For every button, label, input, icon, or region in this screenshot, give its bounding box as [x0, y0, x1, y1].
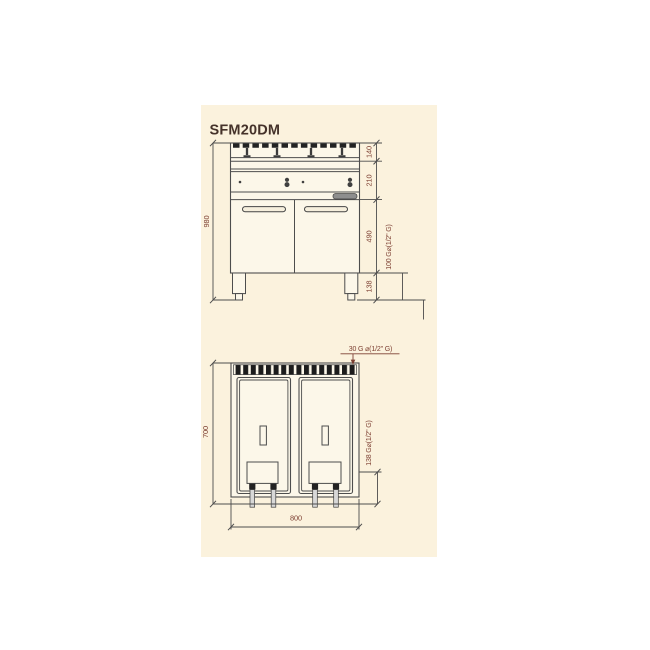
pipe-valve	[312, 484, 318, 490]
dim-depth-label: 700	[201, 426, 210, 438]
model-title: SFM20DM	[210, 123, 281, 139]
dim-overall-height-label: 980	[202, 215, 211, 227]
foot-left-upper	[233, 273, 246, 294]
burner-box	[309, 462, 341, 483]
tank-slot	[322, 426, 328, 445]
door-handle-right	[305, 207, 348, 212]
dim-gas-rear: 138 G⌀(1/2" G)	[359, 420, 382, 507]
burner-box	[247, 462, 278, 483]
dim-extension-lines	[357, 143, 426, 300]
knob-icon	[285, 178, 289, 182]
top-view: 700 800 138 G⌀(1/2" G) 30 G ⌀(1/2" G)	[201, 346, 400, 530]
pipe-valve	[249, 484, 255, 490]
dim-140-label: 140	[365, 146, 374, 158]
pipe-valve	[270, 484, 276, 490]
spec-sheet-page: SFM20DM	[0, 0, 650, 650]
dim-right-sections: 140 210 490 138	[357, 140, 426, 303]
pipe-stem	[313, 490, 318, 508]
foot-right-upper	[345, 273, 358, 294]
pipe-stem	[250, 490, 255, 508]
pilot-dot-icon	[302, 181, 305, 184]
gas-lines	[403, 273, 424, 320]
front-view: 980 140 210 490 138 100 G⌀(1/2" G)	[202, 140, 426, 320]
pipe-valve	[333, 484, 339, 490]
dim-210-label: 210	[365, 174, 374, 186]
dim-width-label: 800	[290, 514, 302, 523]
tank-slot	[260, 426, 266, 445]
technical-drawing: SFM20DM	[0, 0, 650, 650]
gas-connection-front: 100 G⌀(1/2" G)	[386, 224, 424, 319]
knob-icon	[285, 182, 290, 187]
door-handle-left	[243, 207, 286, 212]
rear-hatch-strip	[234, 365, 357, 375]
knob-icon	[348, 182, 353, 187]
feet	[233, 273, 358, 300]
pilot-dot-icon	[239, 181, 242, 184]
dim-138-label: 138	[365, 280, 374, 292]
pipe-stem	[271, 490, 276, 508]
pipe-stem	[334, 490, 339, 508]
foot-left-lower	[236, 294, 243, 300]
dim-490-label: 490	[365, 230, 374, 242]
foot-right-lower	[348, 294, 355, 300]
gas-connection-top: 30 G ⌀(1/2" G)	[341, 346, 400, 365]
knob-icon	[348, 178, 352, 182]
gas-top-label: 30 G ⌀(1/2" G)	[349, 346, 393, 353]
drain-plate	[333, 194, 357, 199]
dim-line	[359, 472, 382, 504]
gas-rear-label: 138 G⌀(1/2" G)	[366, 420, 373, 465]
gas-leader-line	[341, 354, 400, 361]
gas-note-front-label: 100 G⌀(1/2" G)	[386, 224, 393, 269]
